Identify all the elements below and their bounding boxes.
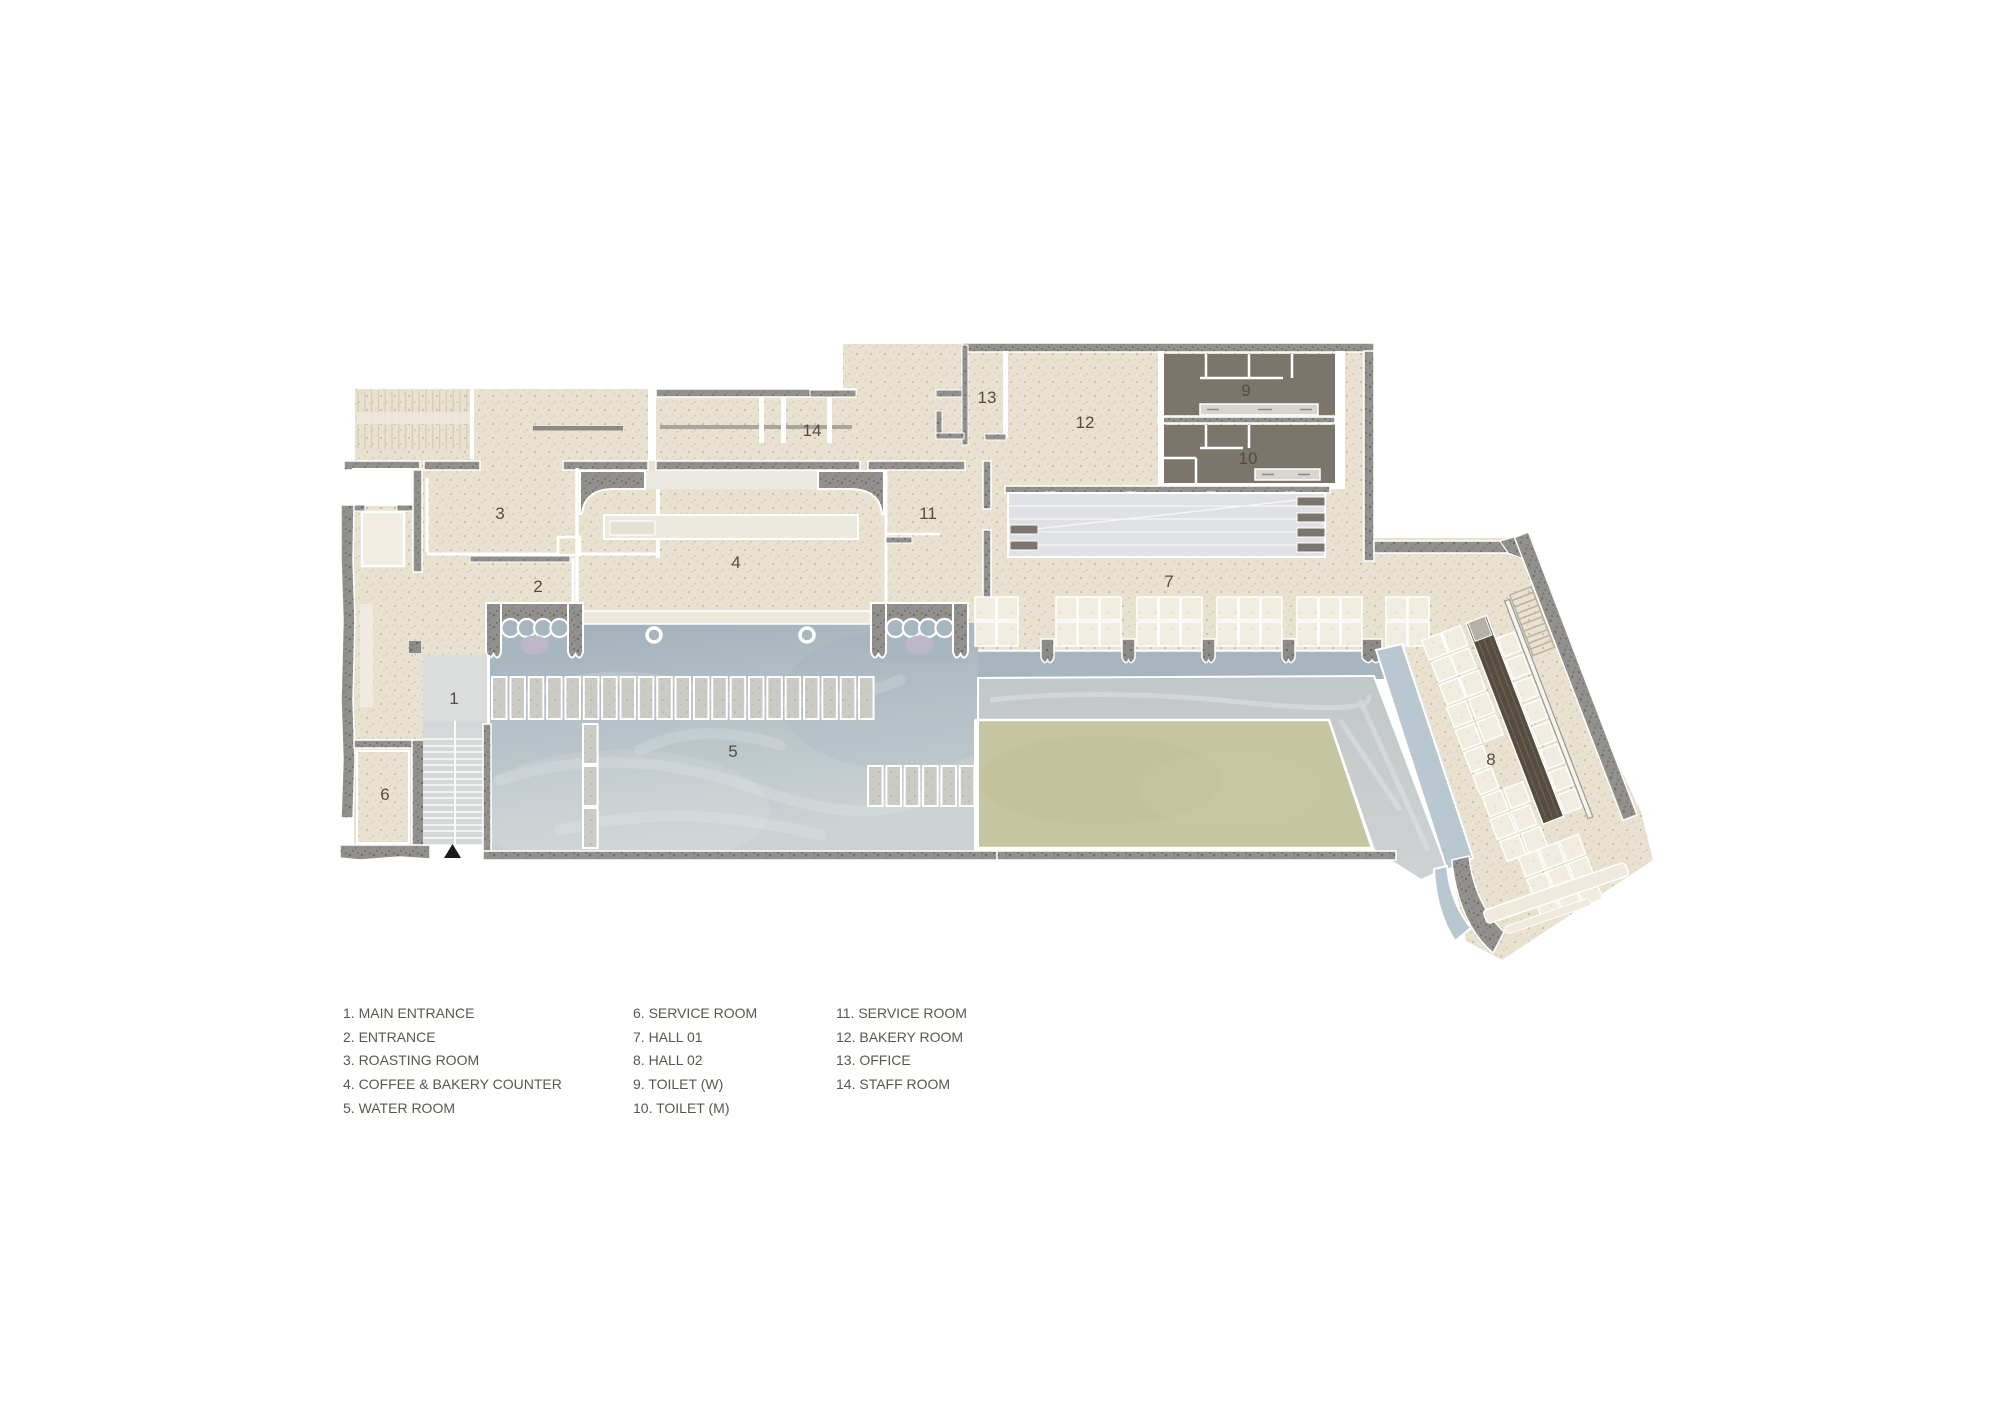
svg-text:6: 6	[380, 785, 389, 804]
svg-text:8: 8	[1486, 750, 1495, 769]
svg-text:13: 13	[978, 388, 997, 407]
svg-text:10: 10	[1239, 449, 1258, 468]
svg-text:11: 11	[919, 504, 937, 523]
svg-text:13. OFFICE: 13. OFFICE	[836, 1052, 911, 1068]
svg-text:9: 9	[1241, 381, 1250, 400]
svg-text:12. BAKERY ROOM: 12. BAKERY ROOM	[836, 1029, 963, 1045]
svg-text:10. TOILET (M): 10. TOILET (M)	[633, 1100, 729, 1116]
svg-text:7. HALL 01: 7. HALL 01	[633, 1029, 703, 1045]
svg-text:4: 4	[731, 553, 740, 572]
svg-text:1. MAIN ENTRANCE: 1. MAIN ENTRANCE	[343, 1005, 474, 1021]
svg-text:2: 2	[533, 577, 542, 596]
svg-text:8. HALL 02: 8. HALL 02	[633, 1052, 703, 1068]
svg-text:5. WATER ROOM: 5. WATER ROOM	[343, 1100, 455, 1116]
svg-text:11. SERVICE ROOM: 11. SERVICE ROOM	[836, 1005, 967, 1021]
svg-text:3: 3	[495, 504, 504, 523]
svg-text:12: 12	[1076, 413, 1095, 432]
svg-text:7: 7	[1164, 572, 1173, 591]
svg-text:3. ROASTING ROOM: 3. ROASTING ROOM	[343, 1052, 479, 1068]
svg-text:1: 1	[449, 689, 458, 708]
svg-text:6. SERVICE ROOM: 6. SERVICE ROOM	[633, 1005, 757, 1021]
svg-text:5: 5	[728, 742, 737, 761]
svg-text:9. TOILET (W): 9. TOILET (W)	[633, 1076, 723, 1092]
svg-text:14: 14	[803, 421, 822, 440]
svg-text:14. STAFF ROOM: 14. STAFF ROOM	[836, 1076, 950, 1092]
svg-text:4. COFFEE & BAKERY COUNTER: 4. COFFEE & BAKERY COUNTER	[343, 1076, 562, 1092]
svg-text:2. ENTRANCE: 2. ENTRANCE	[343, 1029, 436, 1045]
